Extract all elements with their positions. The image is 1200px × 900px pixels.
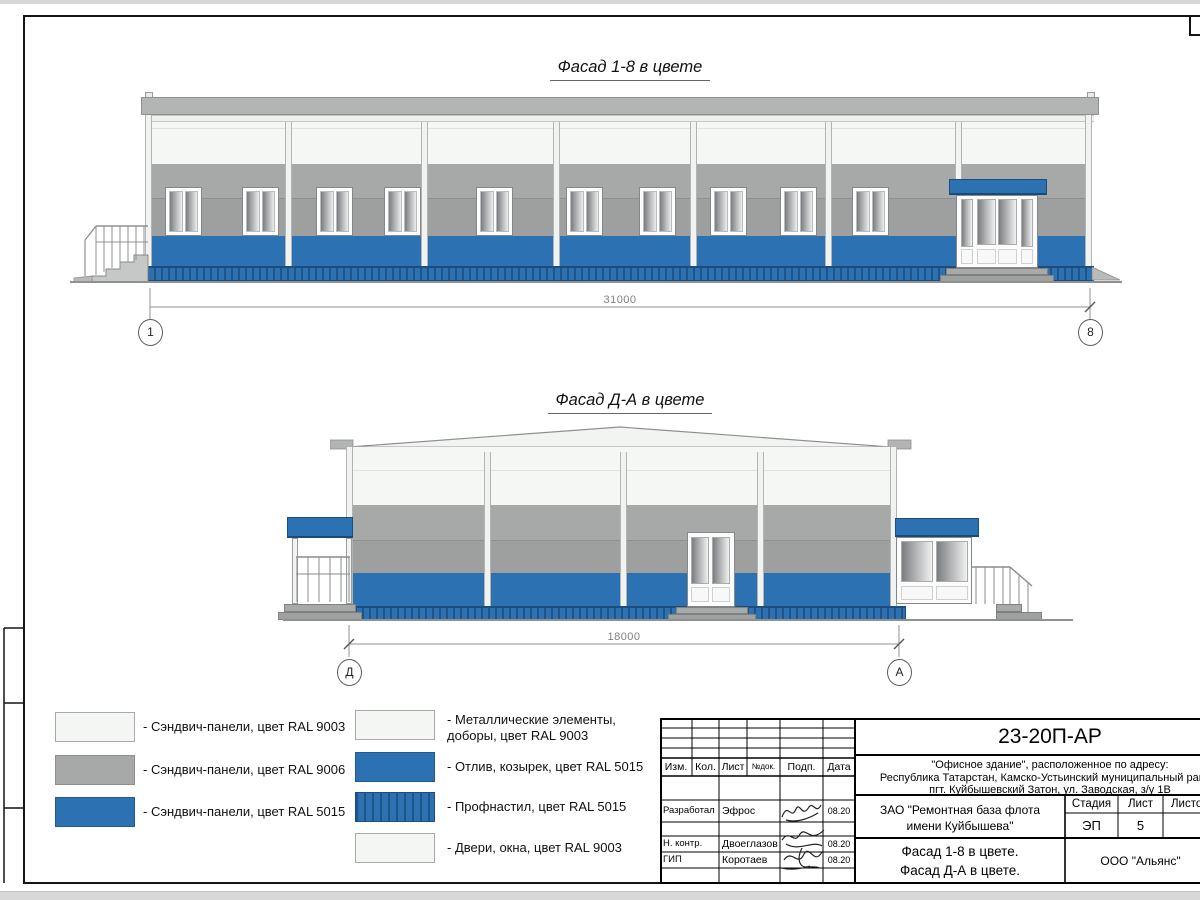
sheet-title-line: Фасад 1-8 в цвете. [855, 842, 1065, 861]
row-date: 08.20 [823, 800, 855, 822]
col-podp: Подп. [780, 758, 823, 776]
row-name: Эфрос [722, 800, 780, 822]
client-line: имени Куйбышева" [855, 818, 1065, 834]
stage-value: ЭП [1065, 813, 1118, 838]
col-list: Лист [719, 758, 747, 776]
address-line: Республика Татарстан, Камско-Устьинский … [855, 772, 1200, 785]
legend-swatch-otliv [355, 752, 435, 782]
sheet-title: Фасад 1-8 в цвете. Фасад Д-А в цвете. [855, 838, 1065, 888]
row-name: Двоеглазов [722, 836, 780, 852]
col-ndok: №док. [747, 758, 780, 776]
company-name: ООО "Альянс" [1065, 838, 1200, 884]
legend-swatch-ral5015 [55, 797, 135, 827]
stage-label: Стадия [1065, 795, 1118, 813]
drawing-sheet: Фасад 1-8 в цвете [0, 0, 1200, 900]
doc-number: 23-20П-АР [855, 721, 1200, 753]
col-data: Дата [823, 758, 855, 776]
legend-swatch-doors [355, 833, 435, 863]
sheet-label: Лист [1118, 795, 1163, 813]
legend-swatch-profnastil [355, 792, 435, 822]
row-role: Разработал [663, 800, 719, 822]
row-role: ГИП [663, 852, 719, 868]
row-name: Коротаев [722, 852, 780, 868]
legend-swatch-metal [355, 710, 435, 740]
title-block: Изм. Кол. Лист №док. Подп. Дата Разработ… [660, 718, 1200, 884]
address-line: "Офисное здание", расположенное по адрес… [855, 759, 1200, 772]
project-address: "Офисное здание", расположенное по адрес… [855, 758, 1200, 796]
client-name: ЗАО "Ремонтная база флота имени Куйбышев… [855, 798, 1065, 840]
signature-icon [776, 826, 828, 872]
col-kol: Кол. [692, 758, 719, 776]
legend-swatch-ral9003 [55, 712, 135, 742]
legend-swatch-ral9006 [55, 755, 135, 785]
col-izm: Изм. [660, 758, 692, 776]
sheet-value: 5 [1118, 813, 1163, 838]
signature-icon [778, 799, 824, 825]
client-line: ЗАО "Ремонтная база флота [855, 802, 1065, 818]
sheets-label: Листов [1163, 795, 1200, 813]
sheet-title-line: Фасад Д-А в цвете. [855, 861, 1065, 880]
row-role: Н. контр. [663, 836, 719, 852]
